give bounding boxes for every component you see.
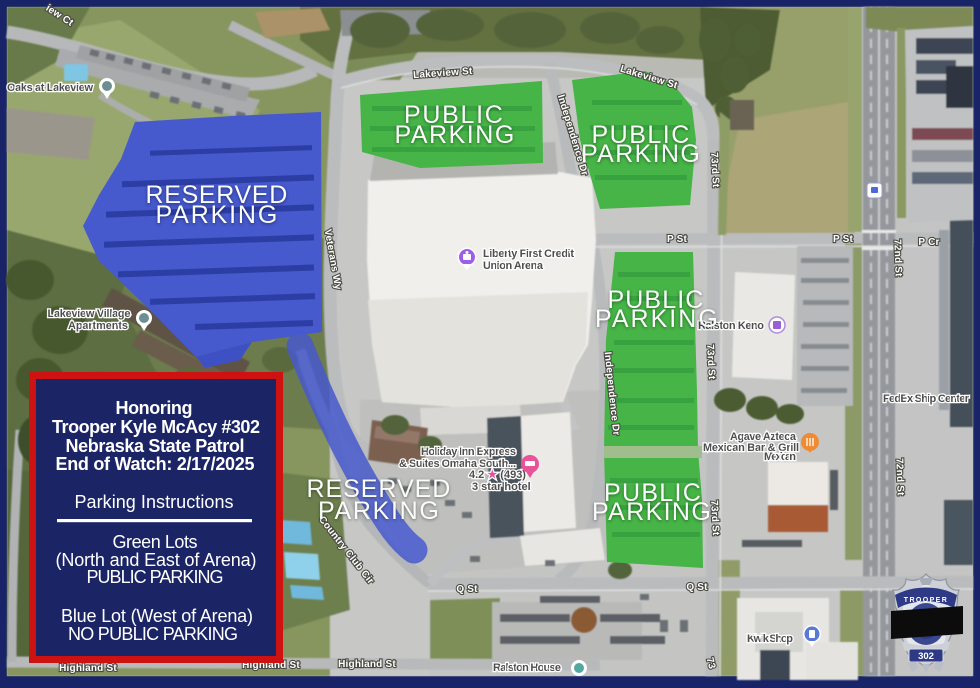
svg-text:PARKING: PARKING <box>595 305 719 333</box>
svg-text:NO PUBLIC PARKING: NO PUBLIC PARKING <box>68 624 238 644</box>
svg-text:Q St: Q St <box>686 582 708 593</box>
svg-text:P St: P St <box>833 234 854 245</box>
svg-text:3 star hotel: 3 star hotel <box>472 481 531 493</box>
svg-text:End of Watch: 2/17/2025: End of Watch: 2/17/2025 <box>56 454 255 474</box>
svg-text:PARKING: PARKING <box>318 497 440 525</box>
svg-text:P St: P St <box>667 234 688 245</box>
svg-text:73rd St: 73rd St <box>704 344 717 380</box>
svg-text:302: 302 <box>918 651 934 662</box>
svg-text:PUBLIC PARKING: PUBLIC PARKING <box>87 567 224 587</box>
svg-text:PARKING: PARKING <box>592 498 712 526</box>
svg-text:Lakeview Village: Lakeview Village <box>48 308 131 320</box>
svg-text:Mexican: Mexican <box>764 451 796 463</box>
svg-text:Highland St: Highland St <box>338 659 396 670</box>
svg-text:73rd St: 73rd St <box>708 152 721 188</box>
svg-text:Highland St: Highland St <box>59 663 117 674</box>
svg-text:P Cr: P Cr <box>918 237 939 248</box>
svg-text:Ralston House: Ralston House <box>493 662 561 674</box>
svg-text:Oaks at Lakeview: Oaks at Lakeview <box>7 82 93 94</box>
svg-text:Parking Instructions: Parking Instructions <box>75 492 234 512</box>
svg-text:PARKING: PARKING <box>395 121 516 149</box>
svg-text:72nd St: 72nd St <box>891 239 903 277</box>
svg-text:PARKING: PARKING <box>156 201 279 229</box>
svg-text:Honoring: Honoring <box>116 398 193 418</box>
svg-text:Green Lots: Green Lots <box>113 532 198 552</box>
svg-text:Apartments: Apartments <box>68 320 128 332</box>
svg-text:Holiday Inn Express: Holiday Inn Express <box>421 446 516 458</box>
svg-text:Kwik Shop: Kwik Shop <box>747 633 793 645</box>
svg-text:Union Arena: Union Arena <box>483 260 544 272</box>
svg-text:Q St: Q St <box>456 584 478 595</box>
svg-text:Nebraska State Patrol: Nebraska State Patrol <box>66 436 245 456</box>
svg-text:PARKING: PARKING <box>581 140 701 168</box>
svg-text:Liberty First Credit: Liberty First Credit <box>483 248 574 260</box>
svg-text:TROOPER: TROOPER <box>904 597 948 604</box>
svg-text:FedEx Ship Center: FedEx Ship Center <box>883 393 970 405</box>
svg-text:4.2 ★ (493): 4.2 ★ (493) <box>469 469 526 481</box>
svg-text:72nd St: 72nd St <box>893 458 905 496</box>
svg-text:Blue Lot (West of Arena): Blue Lot (West of Arena) <box>61 606 253 626</box>
svg-text:Trooper Kyle McAcy #302: Trooper Kyle McAcy #302 <box>52 417 260 437</box>
